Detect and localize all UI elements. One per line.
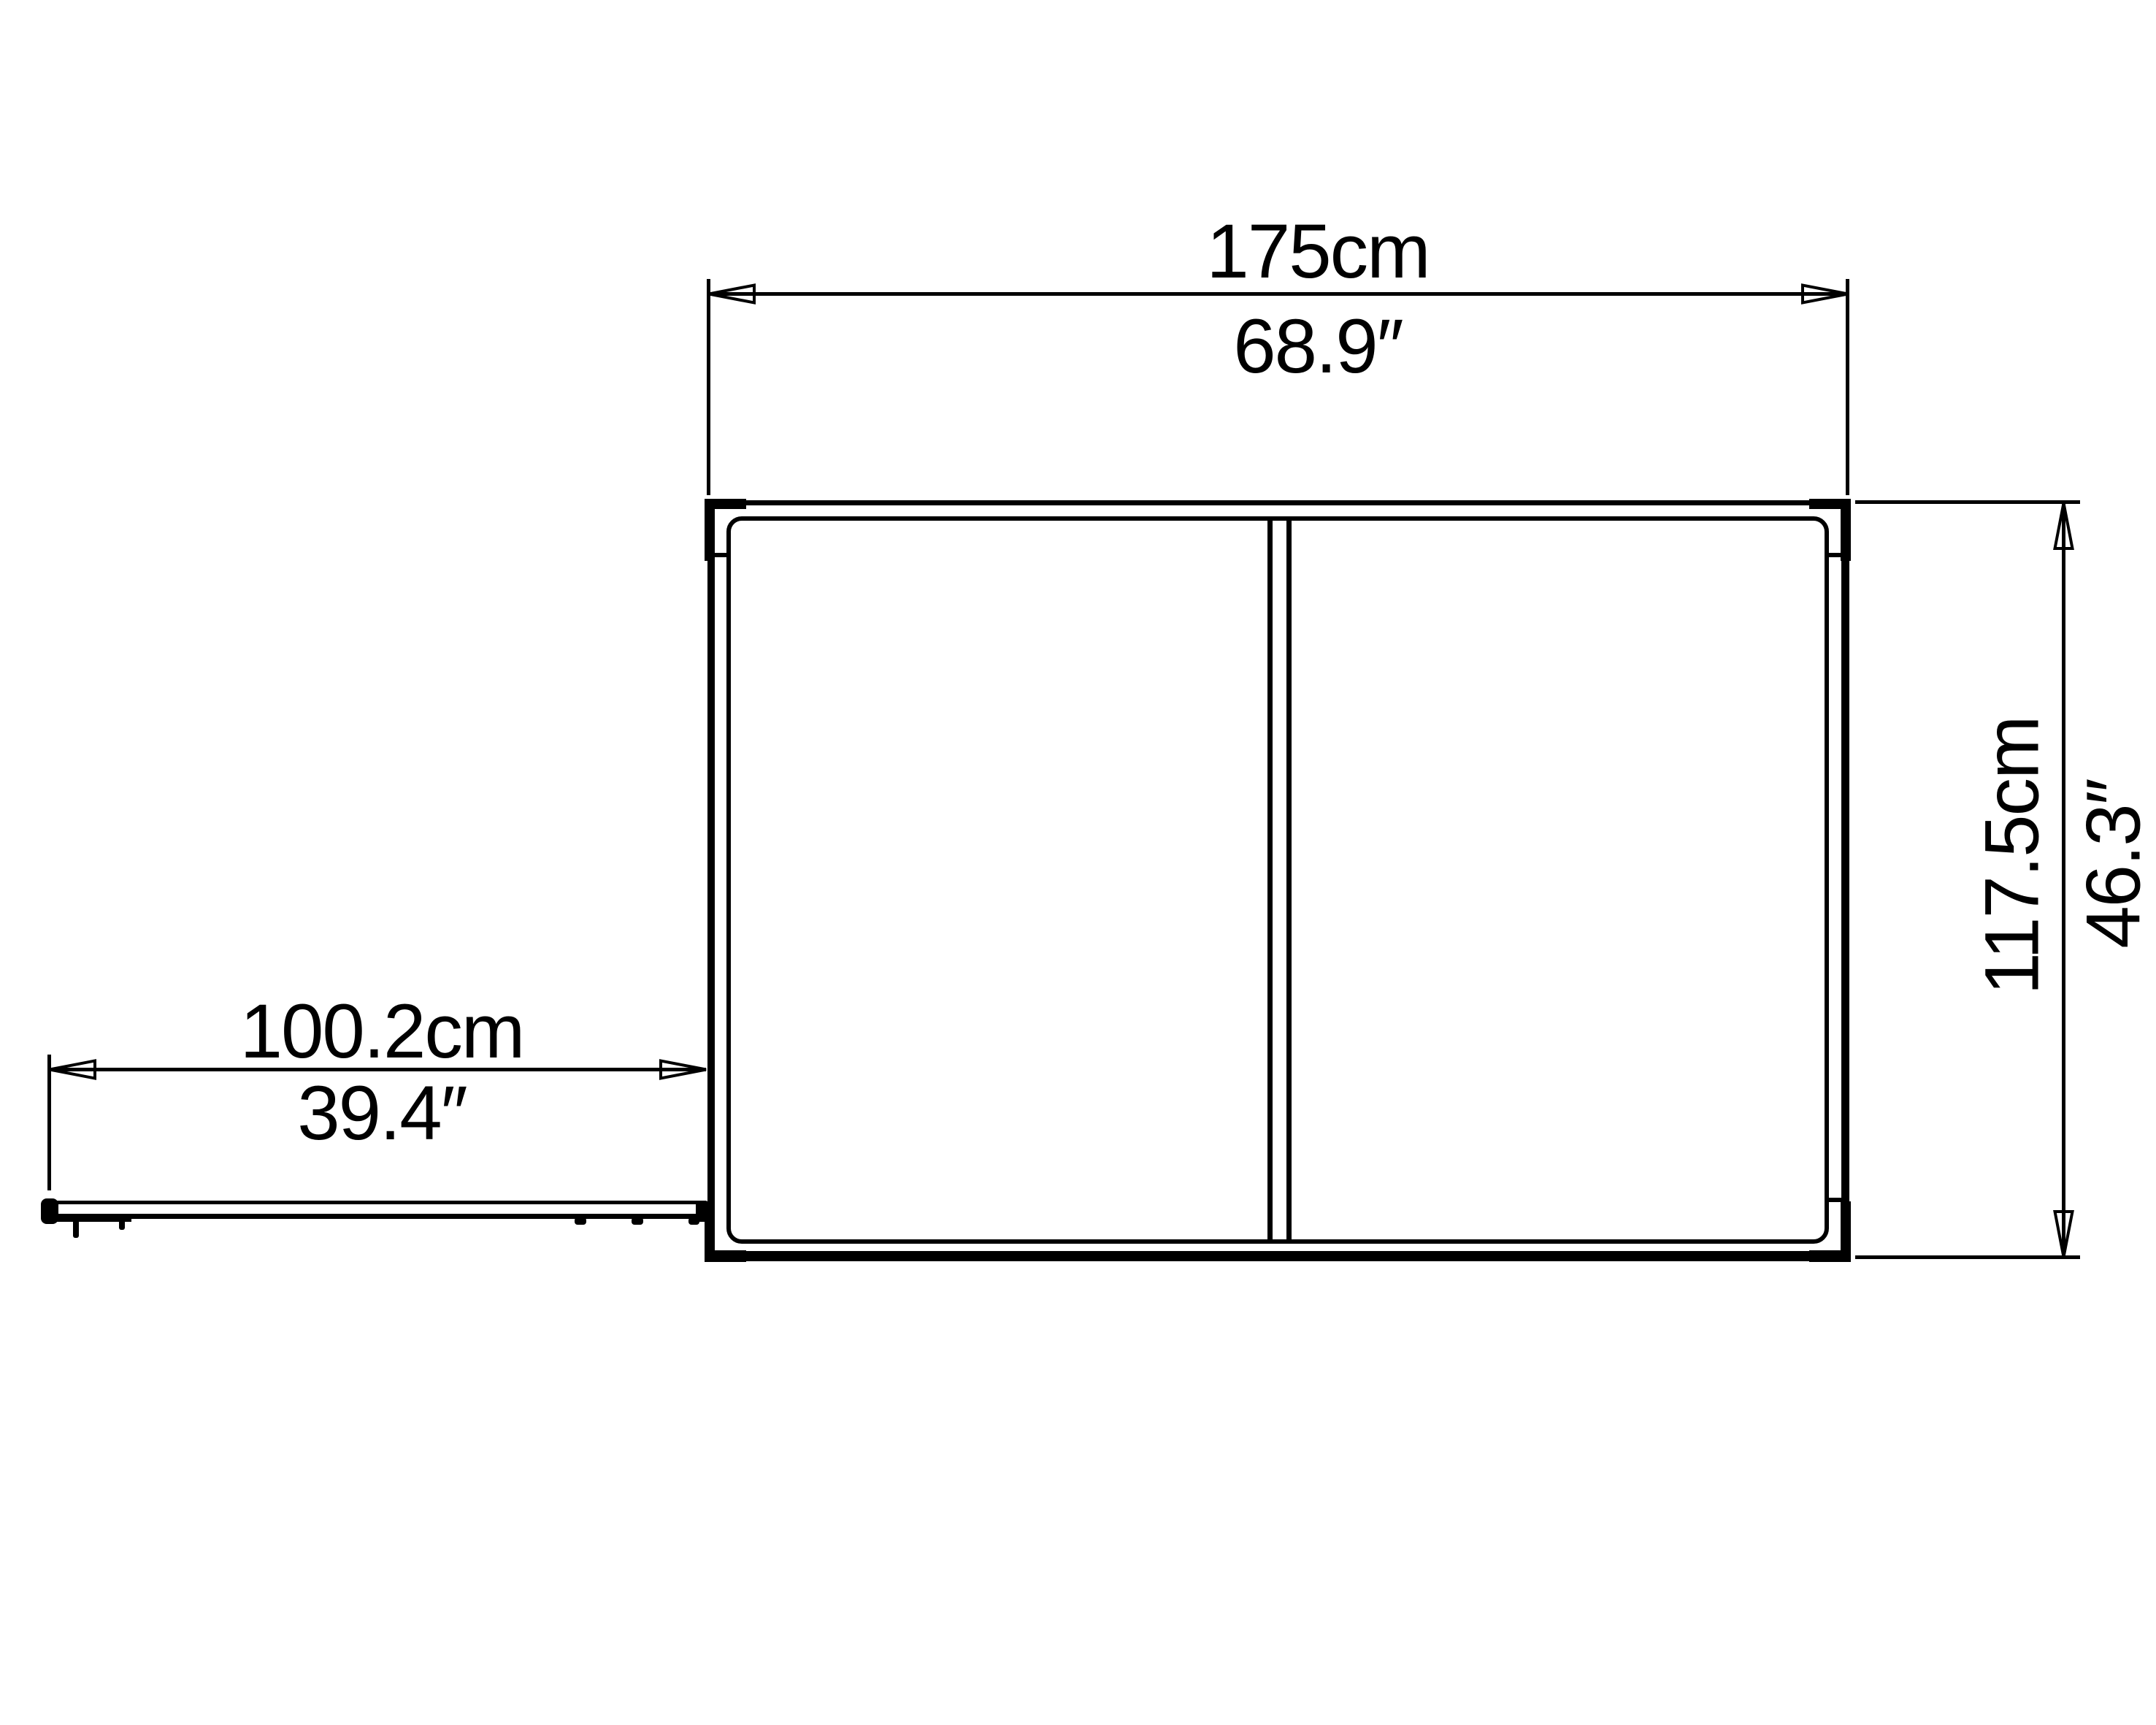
- depth-extension-line-bottom: [1855, 1255, 2080, 1259]
- center-panel-divider: [1267, 519, 1292, 1242]
- door-end-bracket-tick-1: [73, 1217, 79, 1238]
- dimension-diagram: 175cm 68.9″ 100.2cm 39.4″ 117.5cm 46.3″: [0, 0, 2156, 1725]
- depth-extension-line-top: [1855, 500, 2080, 504]
- shed-outline: [705, 499, 1851, 1262]
- frame-tick-bottom-right: [1827, 1198, 1844, 1202]
- door-panel-bottom-line: [44, 1214, 706, 1219]
- width-label-imperial: 68.9″: [1233, 304, 1403, 389]
- door-opening-dimension: 100.2cm 39.4″: [47, 989, 706, 1190]
- outline-top-edge: [707, 500, 1849, 505]
- door-hinge-knuckle-2: [632, 1217, 643, 1225]
- door-label-imperial: 39.4″: [297, 1071, 467, 1156]
- width-dimension: 175cm 68.9″: [707, 209, 1849, 495]
- corner-bracket-bottom-right: [1809, 1201, 1851, 1262]
- corner-bracket-bottom-left: [705, 1201, 746, 1262]
- depth-dimension-line: [2062, 503, 2065, 1257]
- door-extension-line-left: [47, 1055, 51, 1190]
- door-hinge-knuckle-1: [575, 1217, 586, 1225]
- width-label-metric: 175cm: [1206, 209, 1429, 294]
- depth-label-imperial: 46.3″: [2071, 779, 2156, 948]
- door-end-bracket-tick-2: [119, 1217, 125, 1230]
- width-extension-line-right: [1846, 279, 1849, 495]
- frame-tick-top-left: [713, 553, 729, 557]
- outline-right-edge: [1841, 500, 1849, 1261]
- door-panel-top-line: [44, 1201, 706, 1204]
- top-view-drawing: 175cm 68.9″ 100.2cm 39.4″ 117.5cm 46.3″: [0, 0, 2156, 1725]
- corner-bracket-top-left: [705, 499, 746, 561]
- inner-panel-line: [729, 519, 1827, 1242]
- door-hinge-pin: [696, 1201, 709, 1222]
- outline-bottom-edge: [707, 1251, 1849, 1261]
- width-extension-line-left: [707, 279, 710, 495]
- depth-dimension: 117.5cm 46.3″: [1855, 500, 2156, 1259]
- door-label-metric: 100.2cm: [240, 989, 524, 1074]
- frame-tick-top-right: [1827, 553, 1844, 557]
- door-panel-open: [41, 1198, 709, 1238]
- outline-left-edge: [707, 500, 715, 1261]
- corner-bracket-top-right: [1809, 499, 1851, 561]
- depth-label-metric: 117.5cm: [1970, 717, 2055, 995]
- door-handle-end-cap: [41, 1198, 58, 1224]
